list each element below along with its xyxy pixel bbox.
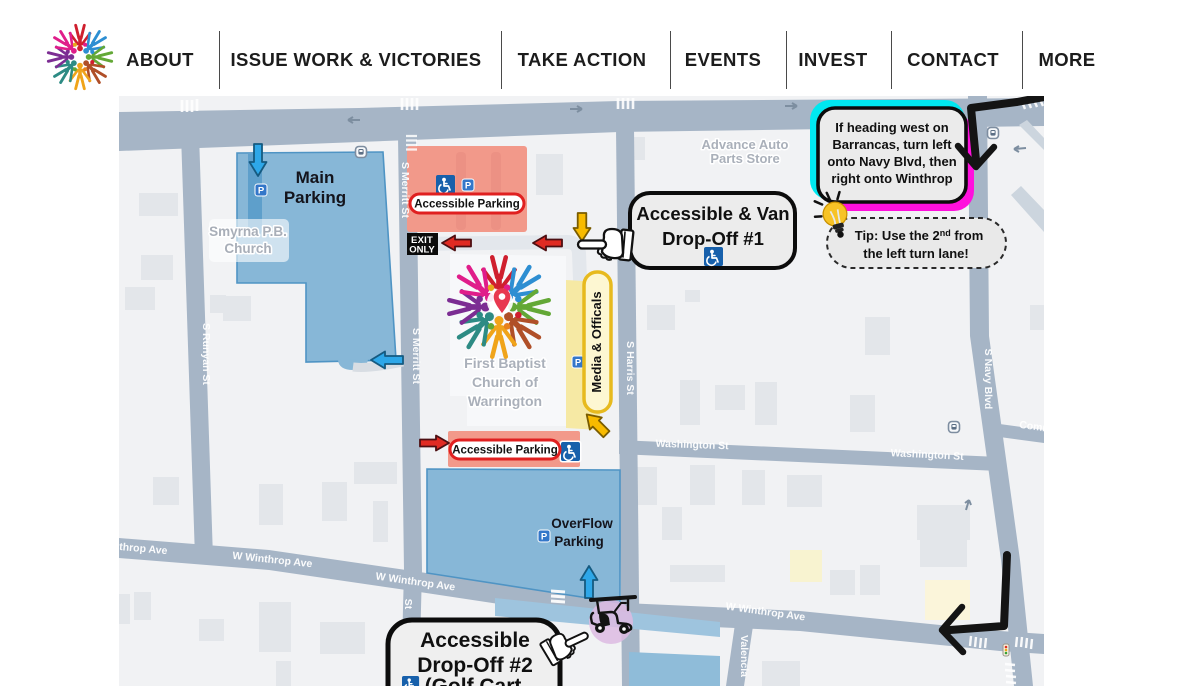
svg-text:If heading west on: If heading west on	[835, 120, 948, 135]
svg-text:Church of: Church of	[472, 374, 538, 390]
svg-text:ONLY: ONLY	[409, 245, 435, 256]
svg-text:S Merritt St: S Merritt St	[399, 162, 411, 219]
svg-text:S Merritt St: S Merritt St	[410, 328, 422, 385]
svg-text:Drop-Off #2: Drop-Off #2	[417, 654, 533, 677]
svg-text:Accessible: Accessible	[420, 629, 530, 652]
svg-text:Accessible & Van: Accessible & Van	[636, 203, 789, 224]
svg-text:right onto Winthrop: right onto Winthrop	[831, 171, 952, 186]
svg-text:Media & Officals: Media & Officals	[589, 291, 604, 392]
svg-text:onto Navy Blvd, then: onto Navy Blvd, then	[827, 154, 956, 169]
svg-text:the left turn lane!: the left turn lane!	[863, 246, 968, 261]
svg-text:S Runyan St: S Runyan St	[200, 323, 212, 385]
svg-text:St: St	[402, 599, 414, 610]
svg-text:Washington St: Washington St	[655, 438, 729, 453]
svg-text:Valencia: Valencia	[738, 635, 750, 677]
svg-text:Accessible Parking: Accessible Parking	[452, 445, 557, 457]
svg-text:Accessible Parking: Accessible Parking	[414, 199, 519, 211]
svg-text:OverFlow: OverFlow	[551, 516, 613, 531]
svg-text:Smyrna P.B.: Smyrna P.B.	[209, 224, 287, 239]
svg-text:Main: Main	[296, 168, 335, 187]
svg-text:S Navy Blvd: S Navy Blvd	[982, 349, 994, 410]
svg-text:Parking: Parking	[284, 188, 346, 207]
svg-text:Barrancas, turn left: Barrancas, turn left	[832, 137, 952, 152]
svg-text:Warrington: Warrington	[468, 393, 542, 409]
svg-text:Drop-Off #1: Drop-Off #1	[662, 228, 764, 249]
svg-text:Advance Auto: Advance Auto	[702, 137, 789, 152]
svg-text:(Golf Cart: (Golf Cart	[425, 675, 522, 686]
svg-text:Parking: Parking	[554, 534, 604, 549]
svg-text:Parts Store: Parts Store	[710, 151, 779, 166]
svg-text:S Harris St: S Harris St	[624, 341, 636, 395]
svg-text:Church: Church	[224, 241, 271, 256]
svg-text:Tip: Use the 2nd from: Tip: Use the 2nd from	[855, 228, 984, 243]
